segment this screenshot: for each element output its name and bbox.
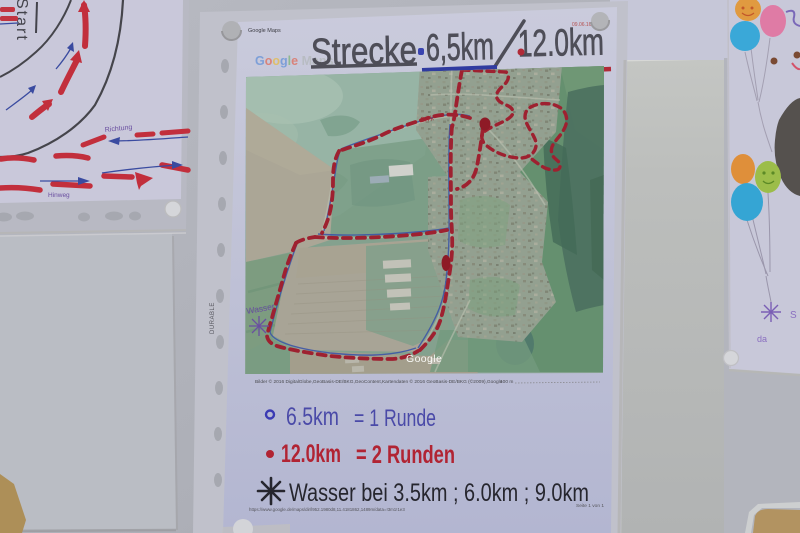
svg-text:da: da (757, 334, 767, 344)
svg-text:Seite 1 von 1: Seite 1 von 1 (576, 503, 604, 509)
svg-text:= 2 Runden: = 2 Runden (356, 441, 455, 469)
svg-text:DURABLE: DURABLE (210, 302, 216, 334)
svg-text:https://www.google.de/maps/dir: https://www.google.de/maps/dir/l952.1980… (249, 507, 405, 512)
svg-text:Wasser bei 3.5km ; 6.0km ; 9.0: Wasser bei 3.5km ; 6.0km ; 9.0km (289, 479, 589, 507)
svg-text:12.0km: 12.0km (517, 22, 604, 66)
svg-text:6,5km: 6,5km (425, 26, 494, 70)
svg-text:S: S (790, 310, 797, 321)
svg-text:6.5km: 6.5km (286, 403, 339, 431)
svg-text:= 1 Runde: = 1 Runde (354, 405, 436, 432)
svg-text:Google Maps: Google Maps (248, 28, 281, 34)
svg-text:Bilder © 2016 DigitalGlobe,Geo: Bilder © 2016 DigitalGlobe,GeoBasis-DE/B… (255, 378, 503, 385)
svg-text:Hinweg: Hinweg (48, 192, 70, 199)
svg-text:12.0km: 12.0km (281, 440, 341, 468)
svg-text:100 m: 100 m (500, 379, 513, 385)
svg-text:Google: Google (406, 353, 442, 365)
